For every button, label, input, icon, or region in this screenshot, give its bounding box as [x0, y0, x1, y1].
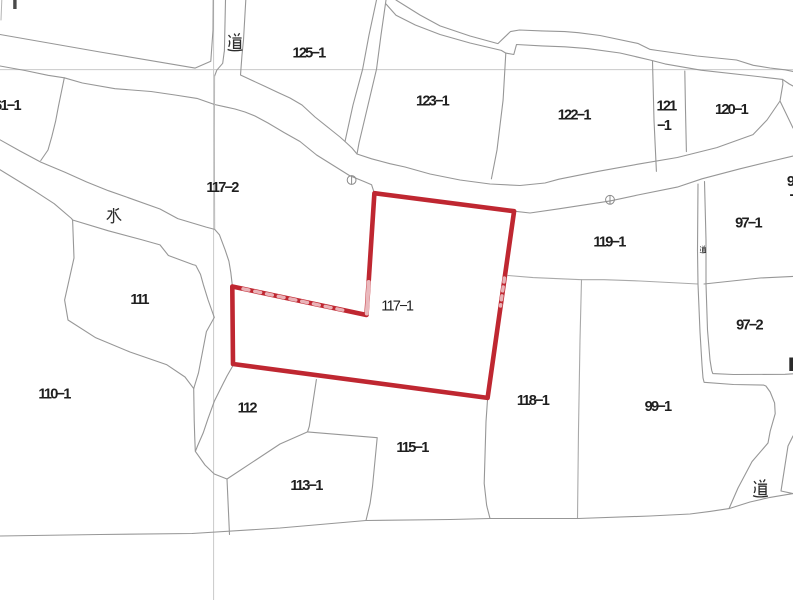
svg-text:112: 112 [238, 401, 258, 417]
svg-text:123−1: 123−1 [416, 94, 450, 110]
svg-text:119−1: 119−1 [593, 235, 626, 251]
svg-text:97−2: 97−2 [736, 318, 763, 334]
svg-text:121: 121 [657, 99, 678, 115]
svg-text:99−1: 99−1 [645, 399, 672, 415]
svg-text:117−1: 117−1 [381, 299, 414, 315]
svg-text:97−1: 97−1 [735, 216, 762, 232]
svg-text:-: - [789, 187, 793, 203]
svg-text:61−1: 61−1 [0, 98, 22, 114]
svg-text:125−1: 125−1 [293, 46, 327, 62]
svg-text:110−1: 110−1 [38, 387, 71, 403]
svg-text:122−1: 122−1 [558, 108, 592, 124]
svg-text:113−1: 113−1 [290, 478, 323, 494]
svg-text:111: 111 [130, 292, 149, 308]
svg-text:115−1: 115−1 [396, 440, 429, 456]
svg-text:120−1: 120−1 [715, 102, 749, 118]
svg-text:−1: −1 [657, 118, 672, 134]
svg-text:118−1: 118−1 [517, 393, 550, 409]
svg-text:117−2: 117−2 [206, 180, 239, 196]
